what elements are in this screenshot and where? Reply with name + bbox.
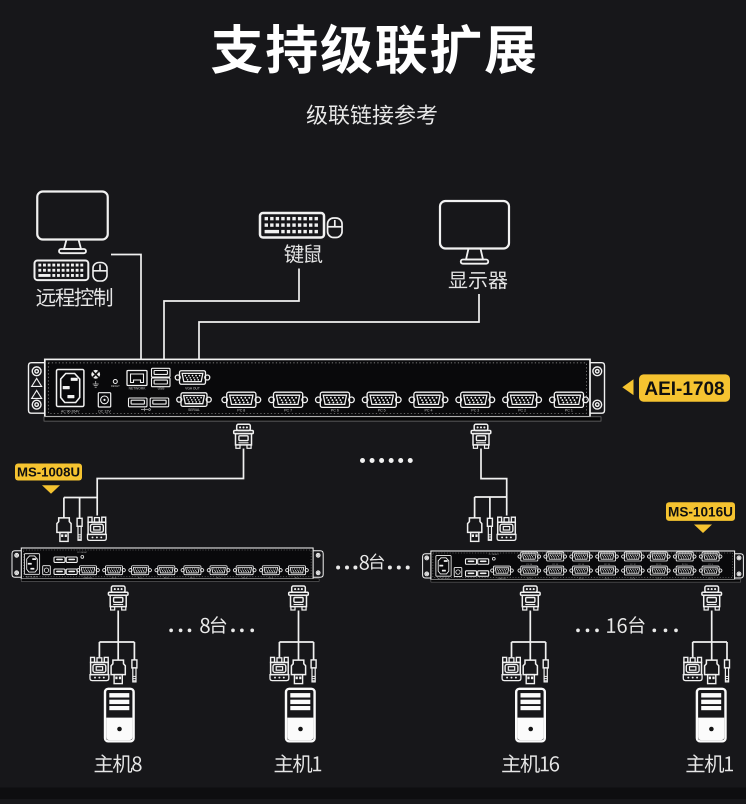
- svg-text:PC 2: PC 2: [518, 409, 526, 413]
- svg-text:VGA OUT: VGA OUT: [185, 386, 200, 390]
- svg-text:PC 14: PC 14: [578, 564, 584, 566]
- svg-text:PC 10: PC 10: [682, 564, 688, 566]
- svg-text:VGA OUT: VGA OUT: [498, 577, 508, 580]
- svg-text:PC RESET: PC RESET: [489, 554, 500, 556]
- svg-text:PC 16: PC 16: [527, 564, 533, 566]
- svg-text:PC 11: PC 11: [656, 564, 662, 566]
- svg-text:RESET: RESET: [111, 384, 120, 388]
- svg-text:VGA OUT: VGA OUT: [84, 577, 94, 580]
- svg-text:PC 3: PC 3: [471, 409, 479, 413]
- svg-text:SERIAL: SERIAL: [188, 408, 200, 412]
- svg-text:PC 1: PC 1: [565, 409, 573, 413]
- svg-text:AC 90-264V: AC 90-264V: [26, 576, 38, 579]
- svg-text:PC 7: PC 7: [284, 409, 292, 413]
- svg-text:DC 12V: DC 12V: [98, 410, 111, 414]
- svg-text:AEI-1708: AEI-1708: [644, 379, 724, 400]
- svg-text:PC 12: PC 12: [630, 564, 636, 566]
- svg-text:MS-1008U: MS-1008U: [17, 464, 80, 479]
- svg-text:PC 4: PC 4: [425, 409, 433, 413]
- svg-text:PC 8: PC 8: [237, 409, 245, 413]
- svg-text:PC 15: PC 15: [552, 564, 558, 566]
- svg-text:PC 13: PC 13: [604, 564, 610, 566]
- svg-text:PC RESET: PC RESET: [77, 552, 88, 554]
- svg-text:PC 5: PC 5: [378, 409, 386, 413]
- svg-text:MS-1016U: MS-1016U: [668, 504, 733, 519]
- svg-text:AC 90-264V: AC 90-264V: [438, 577, 450, 580]
- svg-text:PC 6: PC 6: [331, 409, 339, 413]
- svg-text:USB: USB: [158, 386, 166, 390]
- svg-text:AC 90-264V: AC 90-264V: [61, 410, 80, 414]
- svg-text:NETWORK: NETWORK: [129, 386, 147, 390]
